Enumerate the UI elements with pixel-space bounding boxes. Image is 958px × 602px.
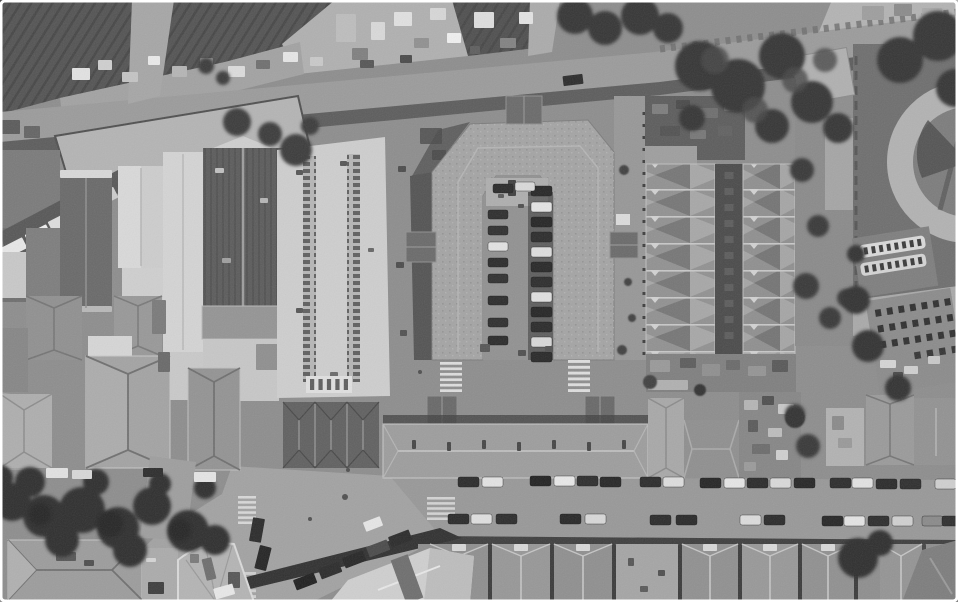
aerial-photo: [0, 0, 958, 602]
aerial-photo-container: [0, 0, 958, 602]
photo-grain: [0, 0, 958, 602]
